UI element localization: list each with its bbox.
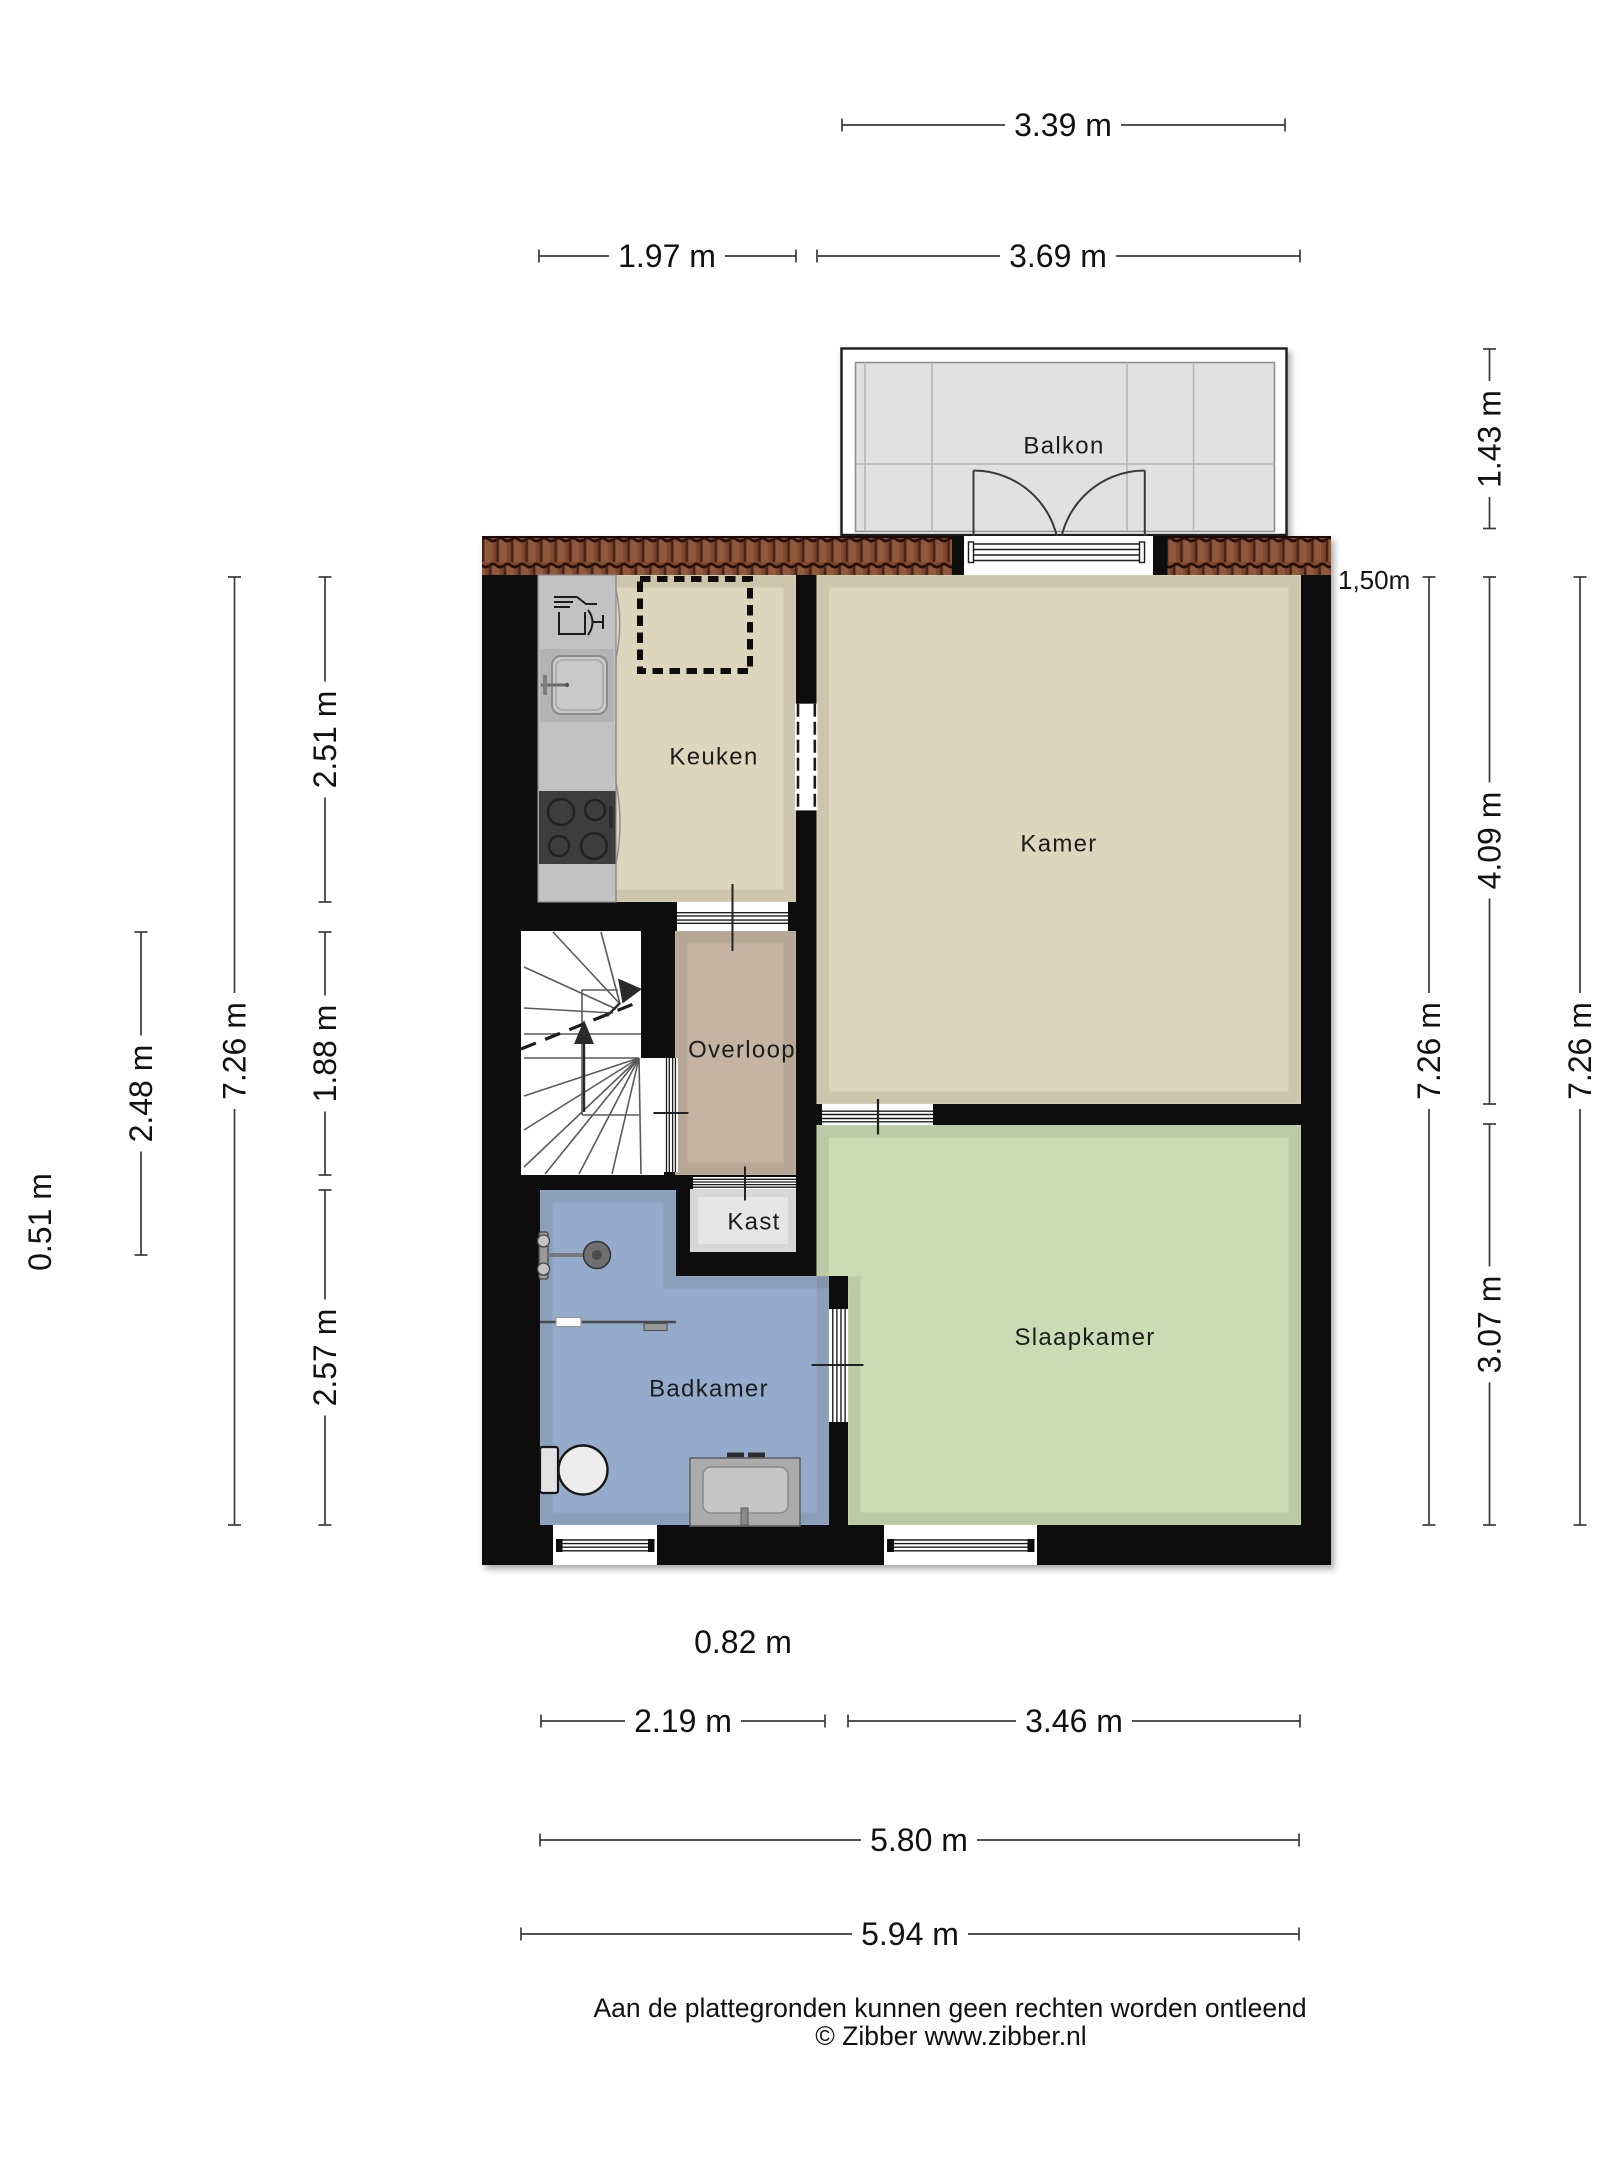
svg-text:1.43 m: 1.43 m — [1472, 390, 1508, 488]
svg-text:Keuken: Keuken — [669, 744, 758, 771]
svg-text:© Zibber www.zibber.nl: © Zibber www.zibber.nl — [815, 2021, 1086, 2051]
svg-text:7.26 m: 7.26 m — [217, 1002, 253, 1100]
svg-text:7.26 m: 7.26 m — [1411, 1002, 1447, 1100]
svg-text:2.51 m: 2.51 m — [307, 691, 343, 789]
svg-text:3.39 m: 3.39 m — [1014, 107, 1112, 143]
svg-text:2.48 m: 2.48 m — [123, 1045, 159, 1143]
svg-text:7.26 m: 7.26 m — [1562, 1002, 1598, 1100]
svg-text:5.80 m: 5.80 m — [870, 1822, 968, 1858]
svg-text:2.57 m: 2.57 m — [307, 1309, 343, 1407]
svg-text:Slaapkamer: Slaapkamer — [1014, 1324, 1155, 1351]
svg-text:Overloop: Overloop — [688, 1037, 796, 1064]
svg-text:3.69 m: 3.69 m — [1009, 238, 1107, 274]
svg-text:3.07 m: 3.07 m — [1472, 1276, 1508, 1374]
svg-text:5.94 m: 5.94 m — [861, 1916, 959, 1952]
svg-text:Balkon: Balkon — [1023, 433, 1104, 460]
svg-text:1,50m: 1,50m — [1338, 565, 1410, 595]
svg-text:Aan de plattegronden kunnen ge: Aan de plattegronden kunnen geen rechten… — [593, 1993, 1306, 2023]
svg-text:1.88 m: 1.88 m — [307, 1005, 343, 1103]
svg-text:0.51 m: 0.51 m — [22, 1173, 58, 1271]
svg-text:Kast: Kast — [727, 1209, 780, 1236]
svg-text:3.46 m: 3.46 m — [1025, 1703, 1123, 1739]
svg-text:4.09 m: 4.09 m — [1472, 792, 1508, 890]
svg-text:Badkamer: Badkamer — [649, 1376, 769, 1403]
svg-text:0.82 m: 0.82 m — [694, 1624, 792, 1660]
svg-text:1.97 m: 1.97 m — [618, 238, 716, 274]
svg-text:2.19 m: 2.19 m — [634, 1703, 732, 1739]
svg-text:Kamer: Kamer — [1020, 831, 1097, 858]
